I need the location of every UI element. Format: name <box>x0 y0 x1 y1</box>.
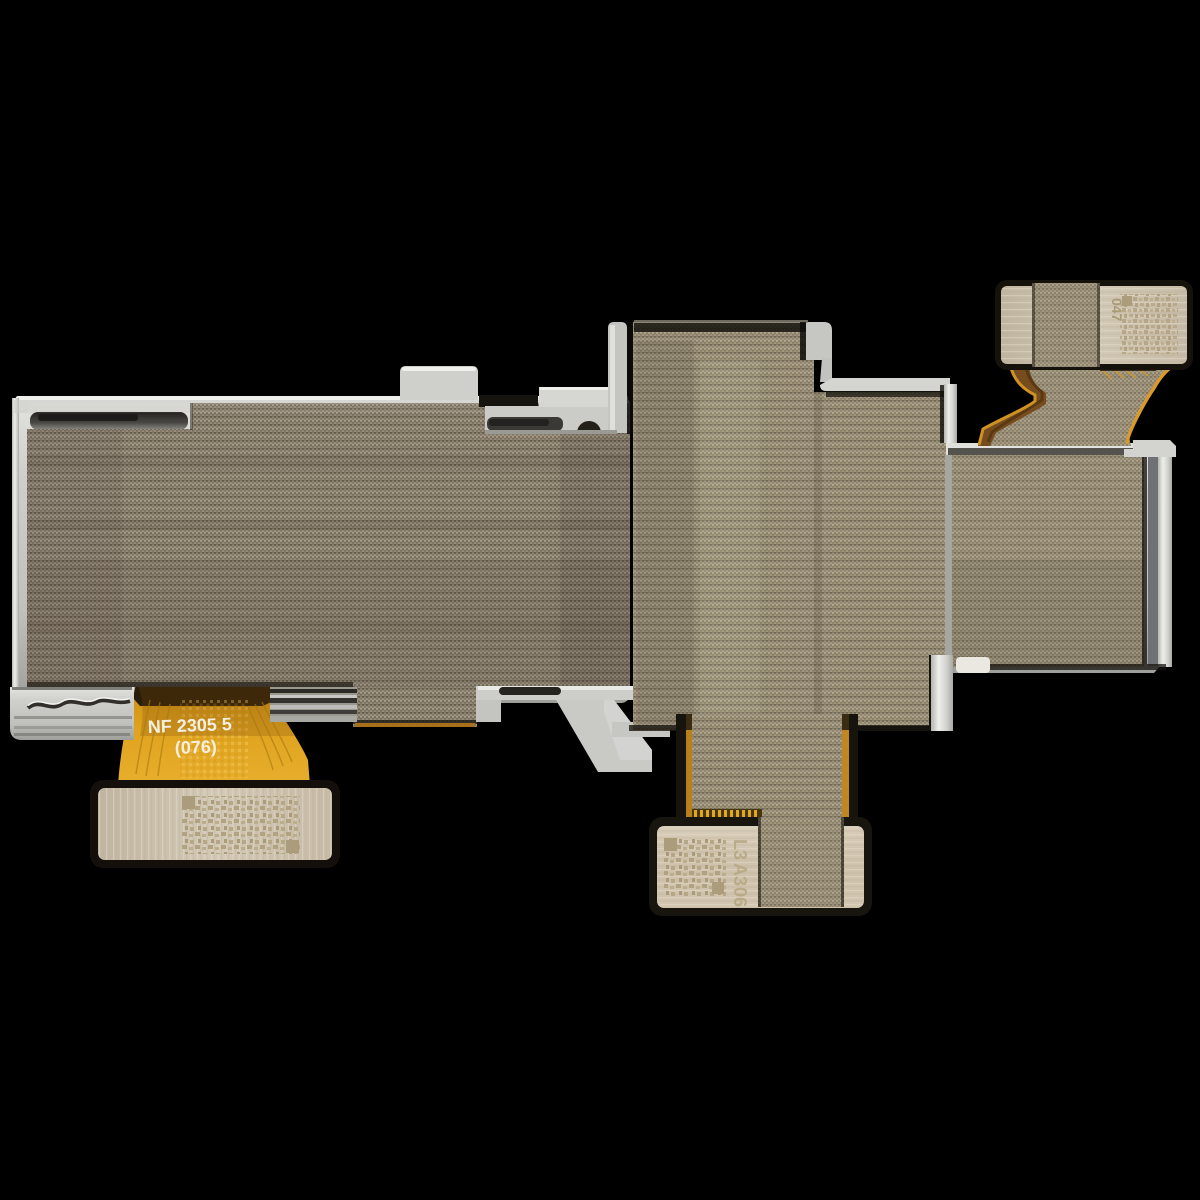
svg-text:(076): (076) <box>174 737 217 758</box>
svg-text:06: 06 <box>730 887 750 907</box>
svg-text:NF 2305 5: NF 2305 5 <box>147 714 232 737</box>
svg-text:L3: L3 <box>730 839 750 860</box>
svg-text:A3: A3 <box>730 863 750 886</box>
svg-text:047: 047 <box>1109 298 1125 322</box>
